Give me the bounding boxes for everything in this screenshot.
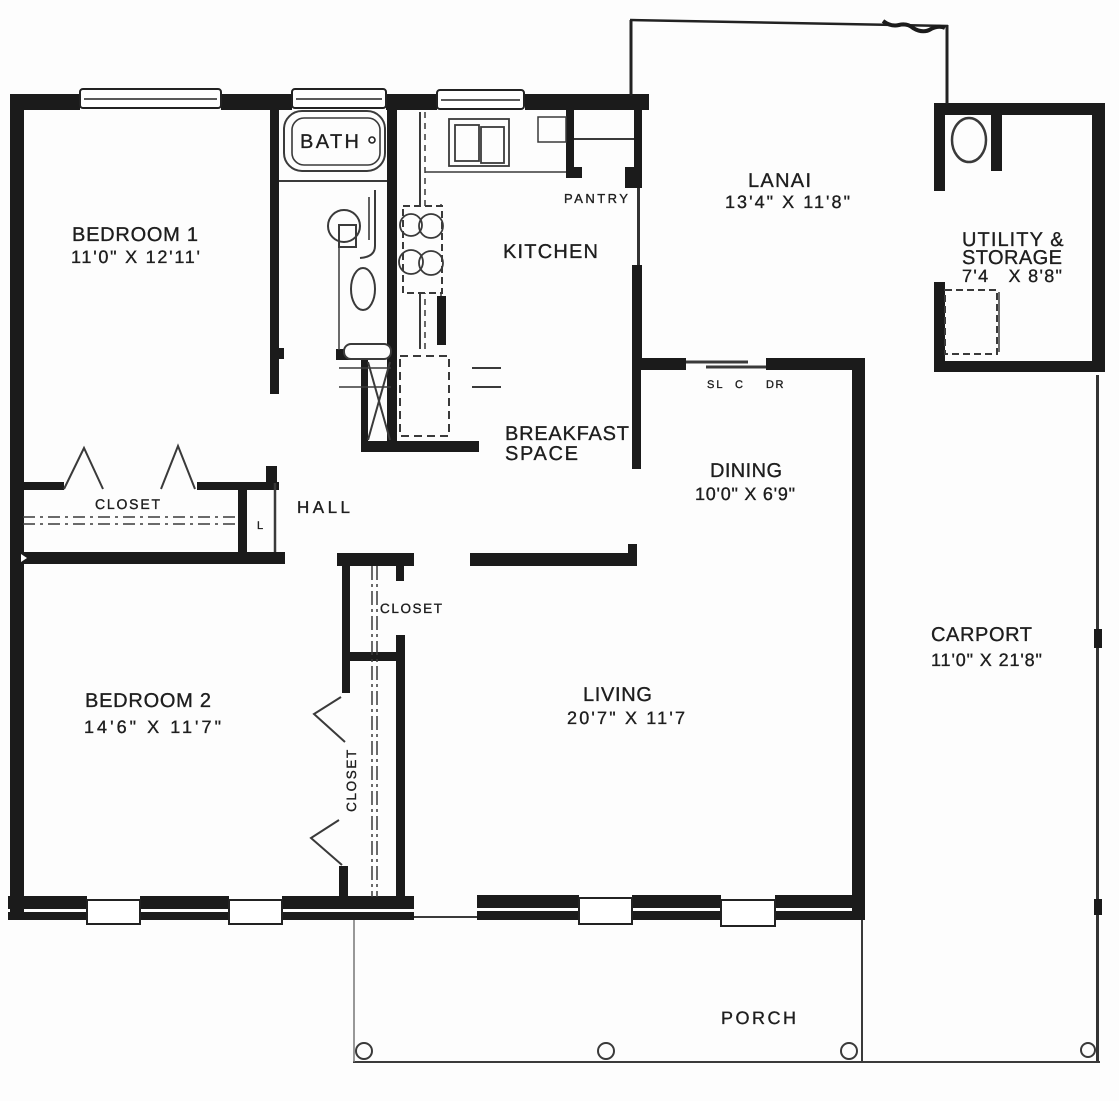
svg-text:BEDROOM 2: BEDROOM 2 bbox=[85, 690, 212, 712]
svg-text:BREAKFAST: BREAKFAST bbox=[505, 423, 630, 445]
svg-text:SL: SL bbox=[707, 379, 724, 391]
svg-text:CARPORT: CARPORT bbox=[931, 624, 1033, 646]
svg-text:10'0" X 6'9": 10'0" X 6'9" bbox=[695, 484, 796, 504]
svg-text:SPACE: SPACE bbox=[505, 443, 580, 465]
svg-text:20'7" X 11'7: 20'7" X 11'7 bbox=[567, 708, 687, 728]
svg-text:CLOSET: CLOSET bbox=[95, 496, 162, 512]
svg-text:CLOSET: CLOSET bbox=[344, 748, 359, 812]
svg-text:14'6" X 11'7": 14'6" X 11'7" bbox=[84, 717, 224, 737]
svg-text:HALL: HALL bbox=[297, 498, 354, 517]
svg-text:PORCH: PORCH bbox=[721, 1008, 799, 1028]
svg-text:C: C bbox=[735, 379, 743, 391]
svg-text:LANAI: LANAI bbox=[748, 170, 812, 192]
svg-text:CLOSET: CLOSET bbox=[380, 601, 444, 616]
svg-text:13'4" X 11'8": 13'4" X 11'8" bbox=[725, 192, 852, 212]
svg-text:L: L bbox=[257, 520, 263, 532]
svg-text:11'0" X 12'11': 11'0" X 12'11' bbox=[71, 247, 202, 267]
svg-text:BATH: BATH bbox=[300, 131, 361, 153]
svg-text:KITCHEN: KITCHEN bbox=[503, 241, 599, 263]
svg-text:7'4 X 8'8": 7'4 X 8'8" bbox=[962, 266, 1063, 286]
svg-text:DINING: DINING bbox=[710, 460, 782, 482]
svg-text:BEDROOM 1: BEDROOM 1 bbox=[72, 224, 199, 246]
svg-text:DR: DR bbox=[766, 379, 785, 391]
svg-text:11'0" X 21'8": 11'0" X 21'8" bbox=[931, 650, 1043, 670]
svg-text:LIVING: LIVING bbox=[583, 684, 653, 706]
svg-text:PANTRY: PANTRY bbox=[564, 191, 630, 206]
